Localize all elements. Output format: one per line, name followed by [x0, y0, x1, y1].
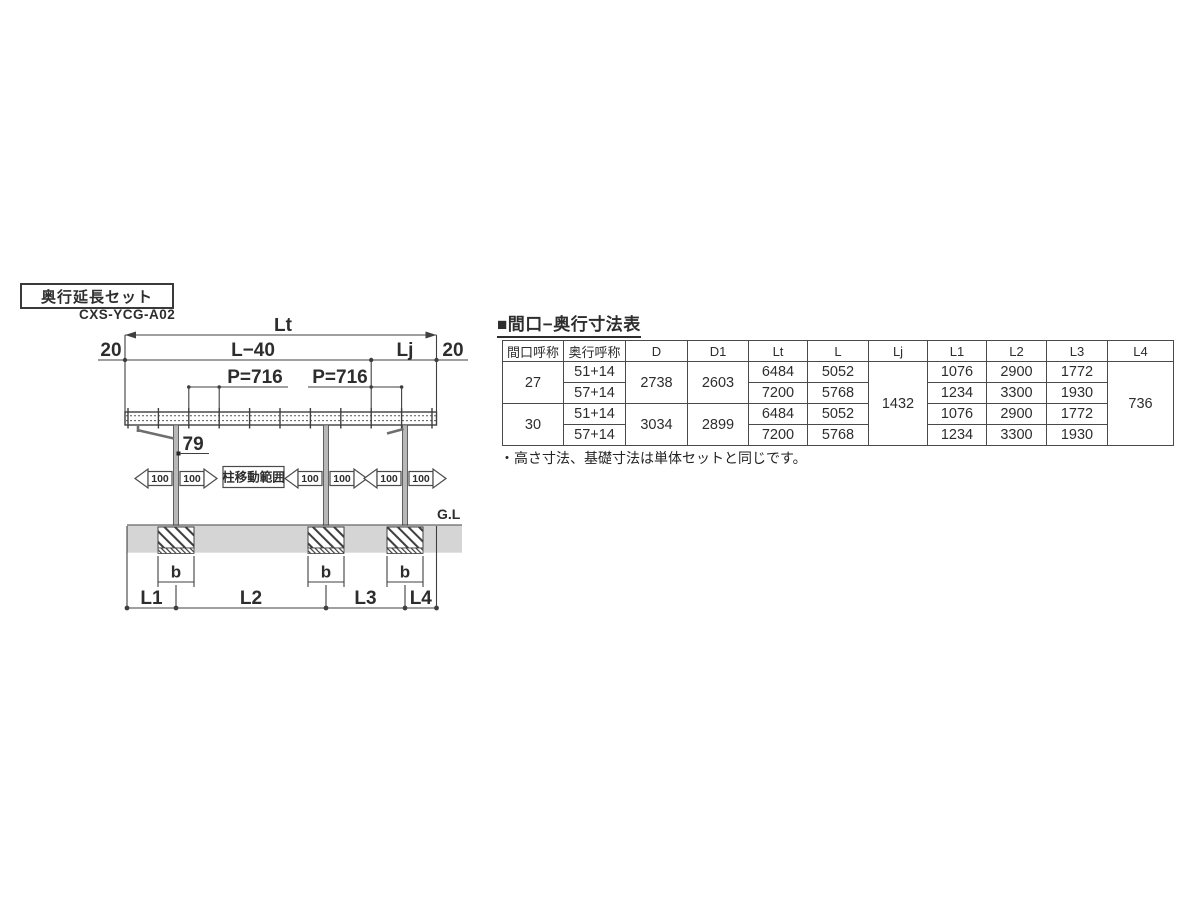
eave-bracket-right	[387, 429, 404, 434]
dimension-table: 間口呼称 奥行呼称 D D1 Lt L Lj L1 L2 L3 L4 27 51…	[502, 340, 1174, 446]
spec-sheet: 奥行延長セット CXS-YCG-A02 Lt	[0, 0, 1200, 900]
col-header: L3	[1047, 341, 1108, 362]
col-header: Lj	[869, 341, 928, 362]
dim-l1-label: L1	[140, 588, 163, 609]
cell-okuyuki: 51+14	[564, 404, 626, 425]
dim-pitch: P=716 P=716	[187, 360, 403, 412]
col-header: L2	[987, 341, 1047, 362]
dim-79-label: 79	[183, 434, 204, 455]
table-title: ■間口−奥行寸法表	[497, 310, 641, 338]
cell-d1: 2603	[688, 362, 749, 404]
move-100-label: 100	[151, 473, 169, 485]
cell-l1: 1076	[928, 362, 987, 383]
cell-l: 5052	[808, 404, 869, 425]
cell-okuyuki: 51+14	[564, 362, 626, 383]
dim-p2-label: P=716	[312, 367, 367, 388]
move-100-label: 100	[301, 473, 319, 485]
cell-l: 5052	[808, 362, 869, 383]
cell-l2: 3300	[987, 383, 1047, 404]
dim-b: b b b	[158, 556, 423, 587]
table-header-row: 間口呼称 奥行呼称 D D1 Lt L Lj L1 L2 L3 L4	[503, 341, 1174, 362]
cell-maguchi: 30	[503, 404, 564, 446]
move-100-label: 100	[380, 473, 398, 485]
move-100-label: 100	[333, 473, 351, 485]
col-header: L1	[928, 341, 987, 362]
dim-main-line: 20 L−40 Lj 20	[98, 340, 468, 362]
cell-lj: 1432	[869, 362, 928, 446]
cell-l1: 1076	[928, 404, 987, 425]
dim-lt: Lt	[125, 318, 437, 412]
dim-l2-label: L2	[240, 588, 262, 609]
cell-l2: 3300	[987, 425, 1047, 446]
eave-bracket-left	[137, 426, 174, 439]
cell-maguchi: 27	[503, 362, 564, 404]
cell-l3: 1772	[1047, 404, 1108, 425]
dim-l40-label: L−40	[231, 340, 275, 361]
cell-lt: 6484	[749, 362, 808, 383]
dim-l4-label: L4	[410, 588, 433, 609]
cell-l3: 1930	[1047, 383, 1108, 404]
move-range-label: 柱移動範囲	[222, 470, 285, 485]
cell-d1: 2899	[688, 404, 749, 446]
move-100-label: 100	[412, 473, 430, 485]
cell-l3: 1772	[1047, 362, 1108, 383]
col-header: L	[808, 341, 869, 362]
move-range-box: 柱移動範囲	[222, 467, 285, 488]
cell-lt: 6484	[749, 404, 808, 425]
table-row: 30 51+14 3034 2899 6484 5052 1076 2900 1…	[503, 404, 1174, 425]
dim-79: 79	[177, 434, 210, 456]
col-header: D	[626, 341, 688, 362]
dim-20-left-label: 20	[100, 340, 121, 361]
dim-b-label: b	[321, 563, 331, 582]
table-row: 27 51+14 2738 2603 6484 5052 1432 1076 2…	[503, 362, 1174, 383]
dim-20-right-label: 20	[442, 340, 463, 361]
col-header: Lt	[749, 341, 808, 362]
cell-l: 5768	[808, 383, 869, 404]
col-header: D1	[688, 341, 749, 362]
col-header: 間口呼称	[503, 341, 564, 362]
set-label-box: 奥行延長セット	[20, 283, 174, 309]
cell-l2: 2900	[987, 362, 1047, 383]
table-note: ・高さ寸法、基礎寸法は単体セットと同じです。	[500, 448, 807, 468]
cell-okuyuki: 57+14	[564, 383, 626, 404]
dim-p1-label: P=716	[227, 367, 282, 388]
cell-l4: 736	[1108, 362, 1174, 446]
col-header: L4	[1108, 341, 1174, 362]
cell-l: 5768	[808, 425, 869, 446]
dim-b-label: b	[400, 563, 410, 582]
dim-b-label: b	[171, 563, 181, 582]
cell-l3: 1930	[1047, 425, 1108, 446]
dim-lj-label: Lj	[397, 340, 414, 361]
col-header: 奥行呼称	[564, 341, 626, 362]
cell-okuyuki: 57+14	[564, 425, 626, 446]
set-label: 奥行延長セット	[41, 286, 153, 307]
cell-l1: 1234	[928, 383, 987, 404]
cell-l1: 1234	[928, 425, 987, 446]
cell-d: 2738	[626, 362, 688, 404]
dim-l3-label: L3	[354, 588, 376, 609]
cell-lt: 7200	[749, 425, 808, 446]
roof-beam	[125, 408, 437, 429]
section-drawing: Lt 20 L−40 Lj 20 P=716	[60, 318, 480, 618]
table-row: 57+14 7200 5768 1234 3300 1930	[503, 425, 1174, 446]
gl-label: G.L	[437, 506, 461, 522]
table-row: 57+14 7200 5768 1234 3300 1930	[503, 383, 1174, 404]
dim-lt-label: Lt	[274, 318, 293, 336]
cell-lt: 7200	[749, 383, 808, 404]
cell-l2: 2900	[987, 404, 1047, 425]
move-100-label: 100	[183, 473, 201, 485]
move-arrows: 100 100 100 100 100 100	[135, 469, 446, 488]
cell-d: 3034	[626, 404, 688, 446]
